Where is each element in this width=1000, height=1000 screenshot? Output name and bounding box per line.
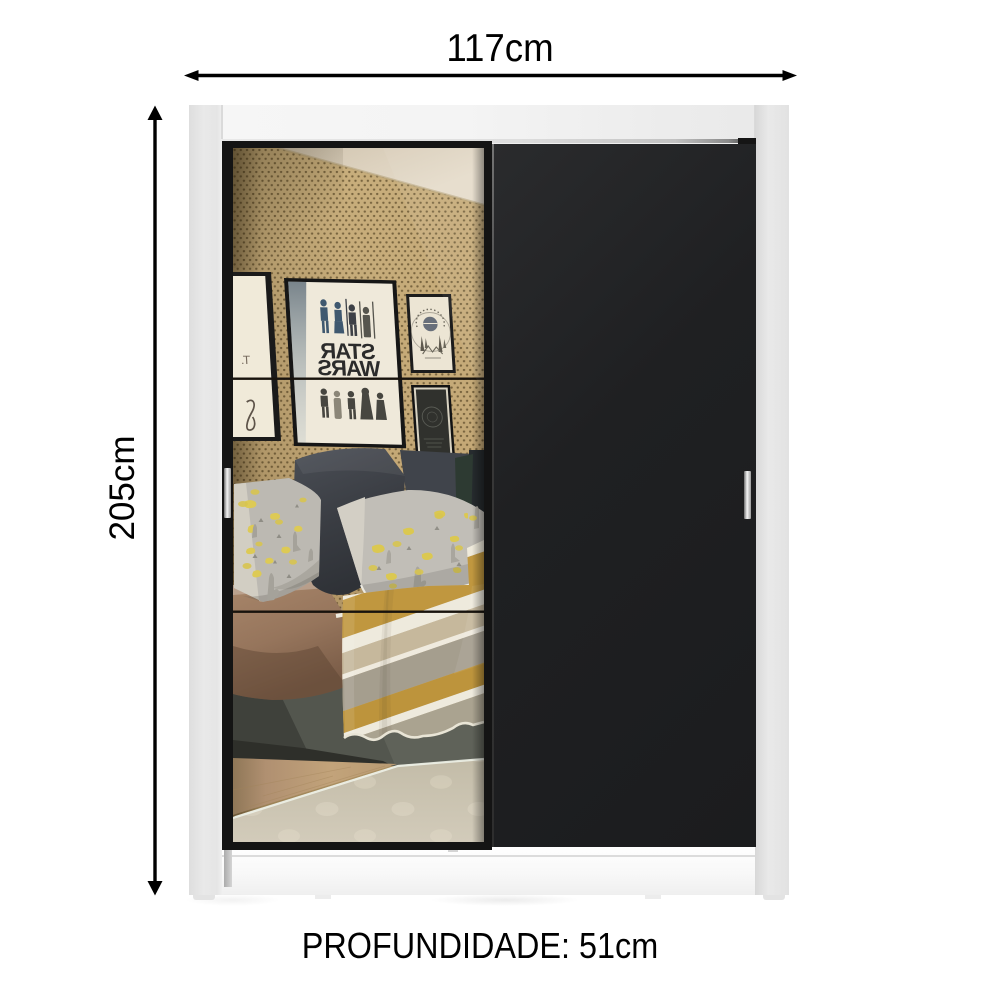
svg-text:T.: T. <box>240 353 250 367</box>
svg-text:WARS: WARS <box>317 355 381 381</box>
